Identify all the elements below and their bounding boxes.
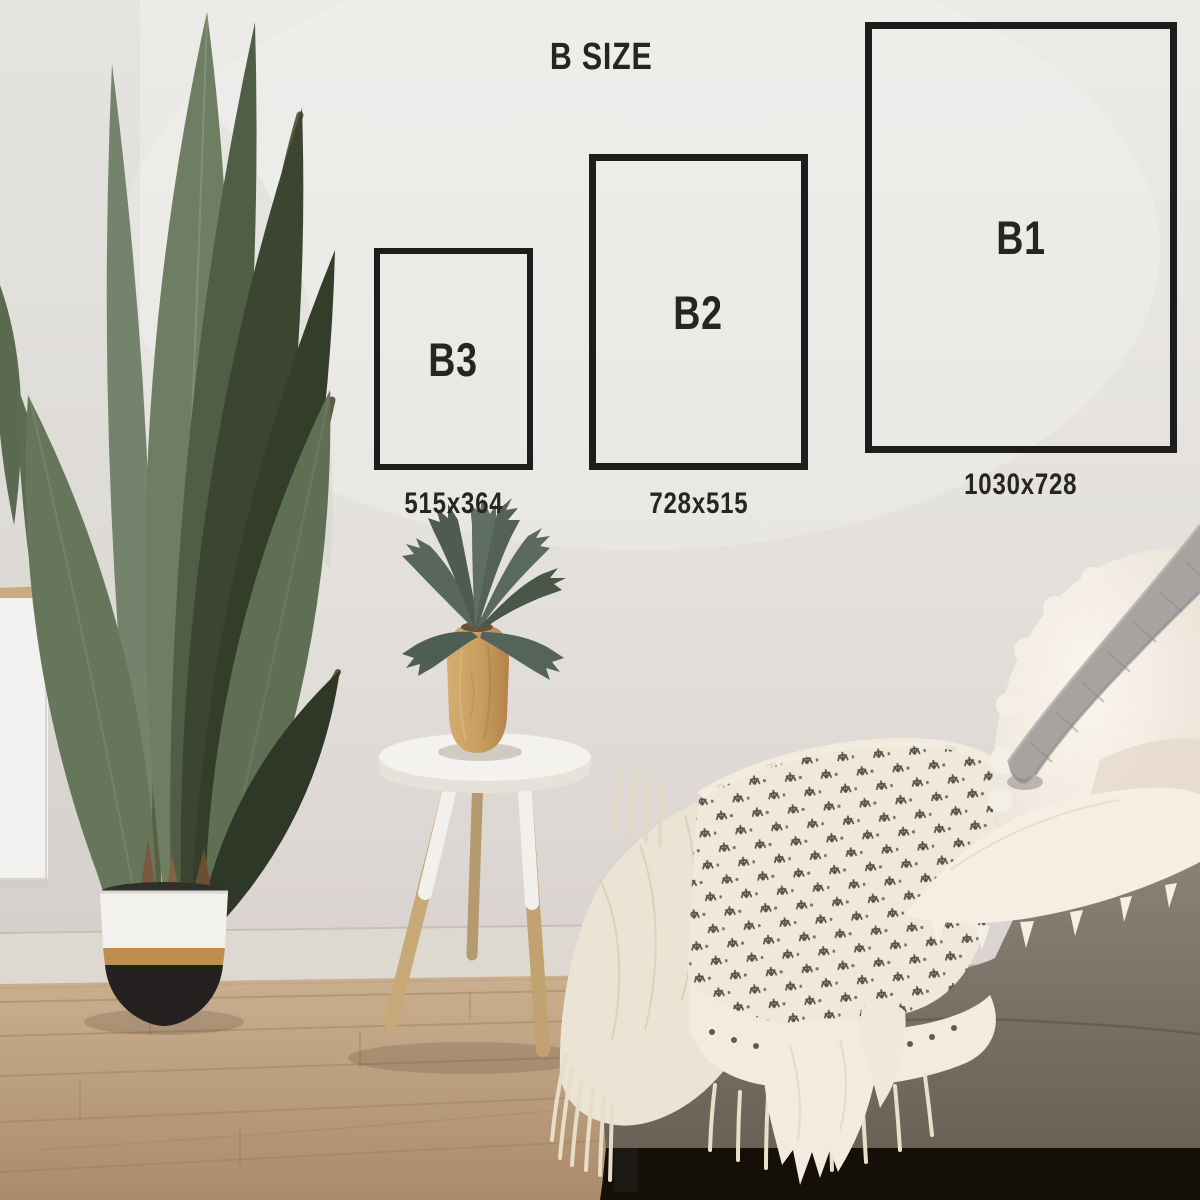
size-frame-b2: B2 <box>589 154 808 470</box>
size-caption-b1: 1030x728 <box>865 470 1177 500</box>
size-frame-b1: B1 <box>865 22 1177 453</box>
size-dimensions-b2: 728x515 <box>649 489 748 519</box>
size-dimensions-b3: 515x364 <box>404 489 503 519</box>
size-frame-b3: B3 <box>374 248 533 470</box>
size-dimensions-b1: 1030x728 <box>964 470 1077 500</box>
size-label-b1: B1 <box>996 210 1046 265</box>
size-label-b3: B3 <box>429 332 479 387</box>
size-caption-b3: 515x364 <box>374 489 533 519</box>
size-label-b2: B2 <box>674 285 724 340</box>
title-text: B SIZE <box>550 38 653 76</box>
size-chart-title: B SIZE <box>451 38 751 76</box>
size-caption-b2: 728x515 <box>589 489 808 519</box>
room-photo: B SIZE B3 B2 B1 515x364 728x515 1030x728 <box>0 0 1200 1200</box>
